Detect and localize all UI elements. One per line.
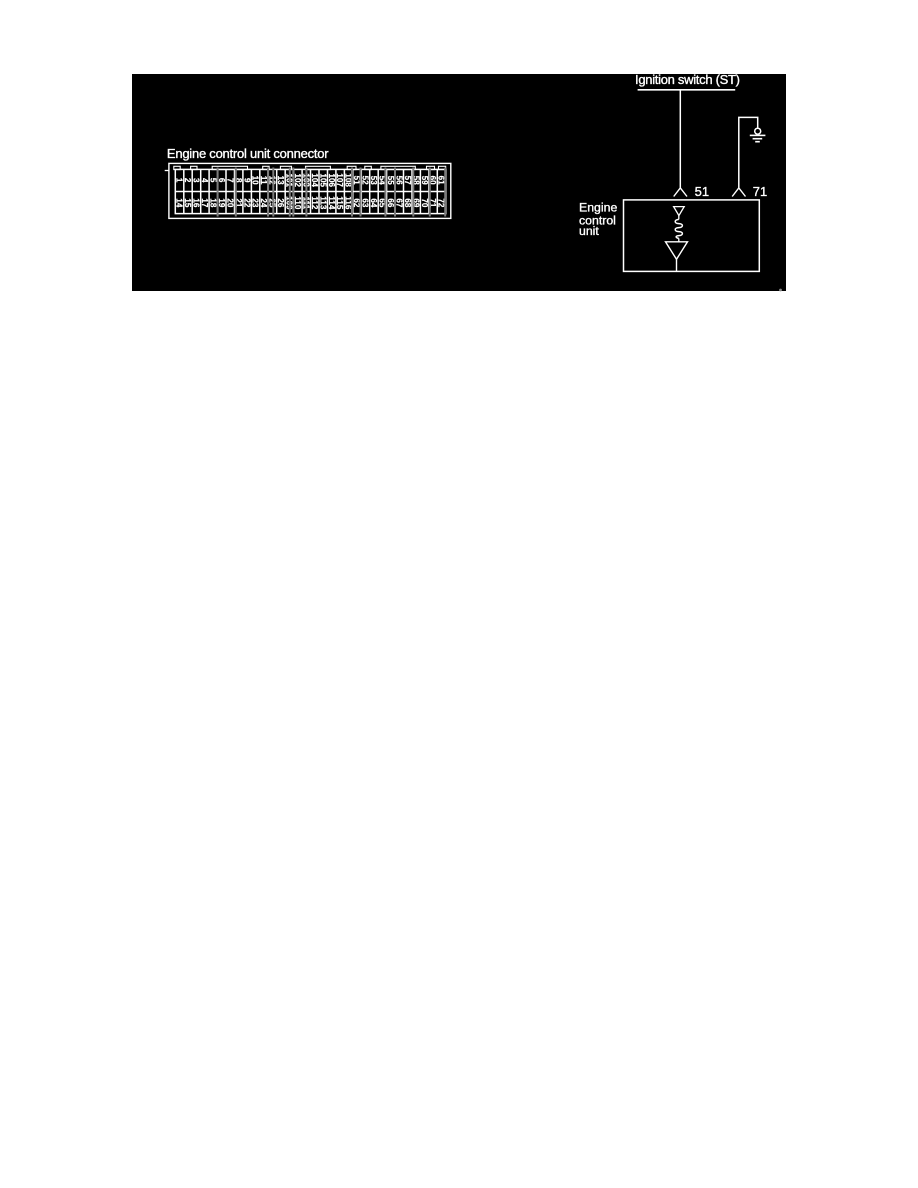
svg-text:1: 1 [175,178,184,183]
svg-text:53: 53 [369,176,378,186]
svg-text:22: 22 [242,198,251,208]
svg-text:20: 20 [225,198,234,208]
svg-text:Engine control unit connector: Engine control unit connector [167,146,329,161]
svg-text:3: 3 [191,178,200,183]
svg-text:115: 115 [335,196,344,210]
svg-text:51: 51 [695,184,709,199]
svg-text:66: 66 [386,198,395,208]
svg-text:102: 102 [293,173,302,187]
svg-text:18: 18 [208,198,217,208]
svg-text:68: 68 [403,198,412,208]
svg-text:9: 9 [242,178,251,183]
svg-text:5: 5 [208,178,217,183]
svg-text:57: 57 [403,176,412,186]
svg-text:unit: unit [579,224,599,238]
svg-text:59: 59 [420,176,429,186]
svg-text:112: 112 [310,196,319,210]
svg-text:7: 7 [225,178,234,183]
svg-text:114: 114 [327,196,336,210]
svg-text:106: 106 [327,173,336,187]
svg-text:16: 16 [191,198,200,208]
svg-text:10: 10 [251,176,260,186]
svg-text:15: 15 [183,198,192,208]
svg-text:63: 63 [361,198,370,208]
svg-text:55: 55 [386,176,395,186]
svg-text:110: 110 [293,196,302,210]
svg-text:52: 52 [361,176,370,186]
svg-text:26: 26 [276,198,285,208]
svg-text:71: 71 [753,184,767,199]
svg-text:105: 105 [318,173,327,187]
svg-text:23: 23 [251,198,260,208]
svg-text:14: 14 [175,198,184,208]
svg-text:107: 107 [335,173,344,187]
svg-text:Ignition switch (ST): Ignition switch (ST) [635,72,740,87]
svg-text:104: 104 [310,173,319,187]
svg-text:13: 13 [276,176,285,186]
svg-text:70: 70 [420,198,429,208]
svg-text:64: 64 [369,198,378,208]
svg-text:24: 24 [259,198,268,208]
svg-text:11: 11 [259,176,268,185]
svg-text:17: 17 [200,198,209,208]
svg-text:4: 4 [200,178,209,183]
svg-text:2: 2 [183,178,192,183]
svg-text:113: 113 [318,196,327,210]
